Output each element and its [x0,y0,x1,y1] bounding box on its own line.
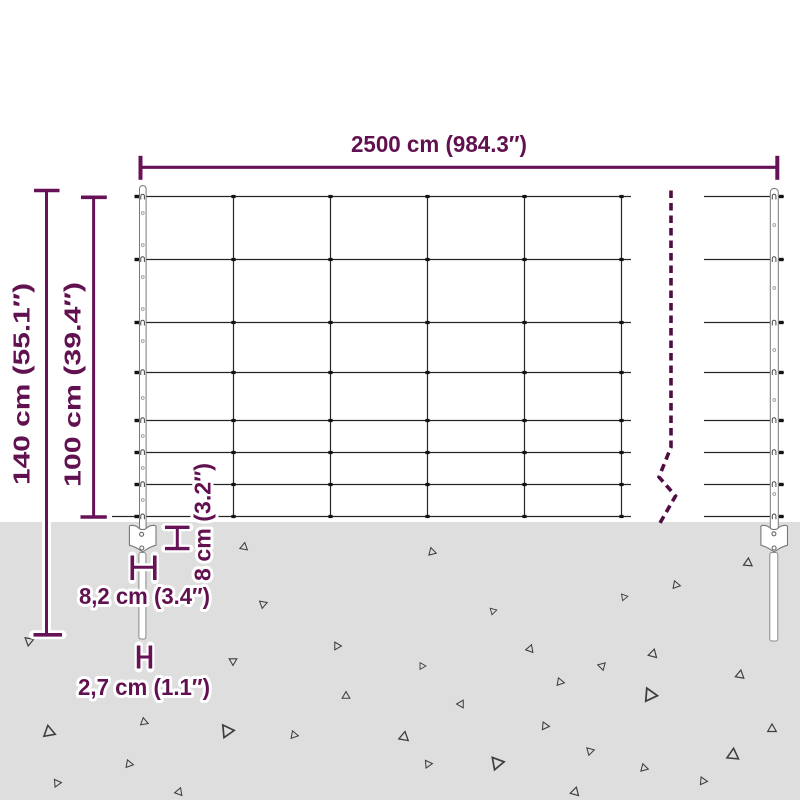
svg-text:8,2 cm (3.4″): 8,2 cm (3.4″) [79,583,210,609]
svg-text:8 cm (3.2″): 8 cm (3.2″) [190,463,216,581]
svg-text:100 cm (39.4″): 100 cm (39.4″) [60,282,86,487]
svg-text:2500 cm (984.3″): 2500 cm (984.3″) [351,131,527,157]
svg-text:2,7 cm (1.1″): 2,7 cm (1.1″) [78,674,210,700]
svg-text:140 cm (55.1″): 140 cm (55.1″) [9,283,35,485]
